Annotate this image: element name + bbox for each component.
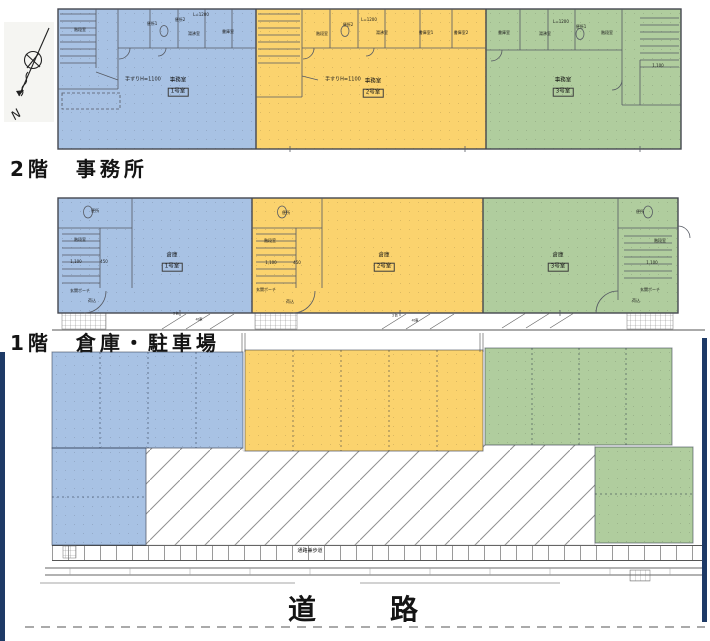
- site-plan-page: N 事務室 1号室 事務室 2号室 事務室 3号室 倉庫 1号室 倉庫 2号室 …: [0, 0, 710, 641]
- f1-u1-dim1: 1,100: [70, 260, 81, 264]
- f1-u3-nikomi: 荷込: [632, 299, 640, 303]
- f1-u1-dim2: 450: [100, 260, 108, 264]
- strip-2dai-2: 2台: [392, 314, 398, 318]
- f1-u1-kaidan: 階段室: [74, 238, 86, 242]
- f2-u2-kaidan: 階段室: [316, 32, 328, 36]
- f2-u2-shoko2: 書庫室2: [454, 31, 469, 35]
- f1-u3-genkan: 玄関ポーチ: [640, 288, 660, 292]
- floor2-caption: 2階 事務所: [10, 153, 148, 182]
- f2-u1-l1200: L=1200: [193, 13, 209, 17]
- f2-u1-kaidan: 階段室: [74, 28, 86, 32]
- f2-u1-shoko: 書庫室: [222, 30, 234, 34]
- strip-4t-1: 4t車: [195, 318, 202, 322]
- f2-u3-kaidan: 階段室: [601, 31, 613, 35]
- f2-u3-dim: 1,100: [652, 64, 663, 68]
- f2-u2-l1200: L=1200: [361, 18, 377, 22]
- f2-u3-shoko: 書庫室: [498, 31, 510, 35]
- f2-u3-benjo: 便所1: [576, 25, 587, 29]
- f1-u2-dim1: 1,100: [265, 261, 276, 265]
- f2-u3-yuwakashi: 湯沸室: [539, 32, 551, 36]
- boundary-line-left: [0, 352, 5, 641]
- f2-u1-tesuri: 手すりH=1100: [125, 78, 161, 83]
- f2-u1-benjo1: 便所1: [147, 22, 158, 26]
- f1-u2-genkan: 玄関ポーチ: [256, 288, 276, 292]
- annotation-layer: 階段室便所1便所2L=1200湯沸室書庫室手すりH=1100階段室便所2L=12…: [0, 0, 710, 641]
- f1-u3-kaidan: 階段室: [654, 239, 666, 243]
- f1-u3-dim1: 1,100: [646, 261, 657, 265]
- f2-u2-benjo2: 便所2: [343, 23, 354, 27]
- strip-4t-2: 4t車: [411, 319, 418, 323]
- f1-u1-genkan: 玄関ポーチ: [70, 289, 90, 293]
- f2-u3-l1200: L=1200: [553, 20, 569, 24]
- f1-u1-nikomi: 荷込: [88, 299, 96, 303]
- floor1-caption: 1階 倉庫・駐車場: [10, 327, 220, 356]
- f2-u2-yuwakashi: 湯沸室: [376, 31, 388, 35]
- f1-u1-benjo: 便所: [91, 209, 99, 213]
- f1-u3-benjo: 便所: [636, 210, 644, 214]
- strip-2dai-1: 2台: [173, 312, 179, 316]
- f2-u1-benjo2: 便所2: [175, 18, 186, 22]
- f2-u2-tesuri: 手すりH=1100: [325, 78, 361, 83]
- road-caption: 道 路: [288, 588, 424, 628]
- f1-u2-benjo: 便所: [282, 211, 290, 215]
- f1-u2-kaidan: 階段室: [264, 239, 276, 243]
- f2-u2-shoko1: 書庫室1: [419, 31, 434, 35]
- boundary-line-right: [702, 338, 707, 622]
- f2-u1-yuwakashi: 湯沸室: [188, 32, 200, 36]
- f1-u2-nikomi: 荷込: [286, 300, 294, 304]
- f1-u2-dim2: 450: [293, 261, 301, 265]
